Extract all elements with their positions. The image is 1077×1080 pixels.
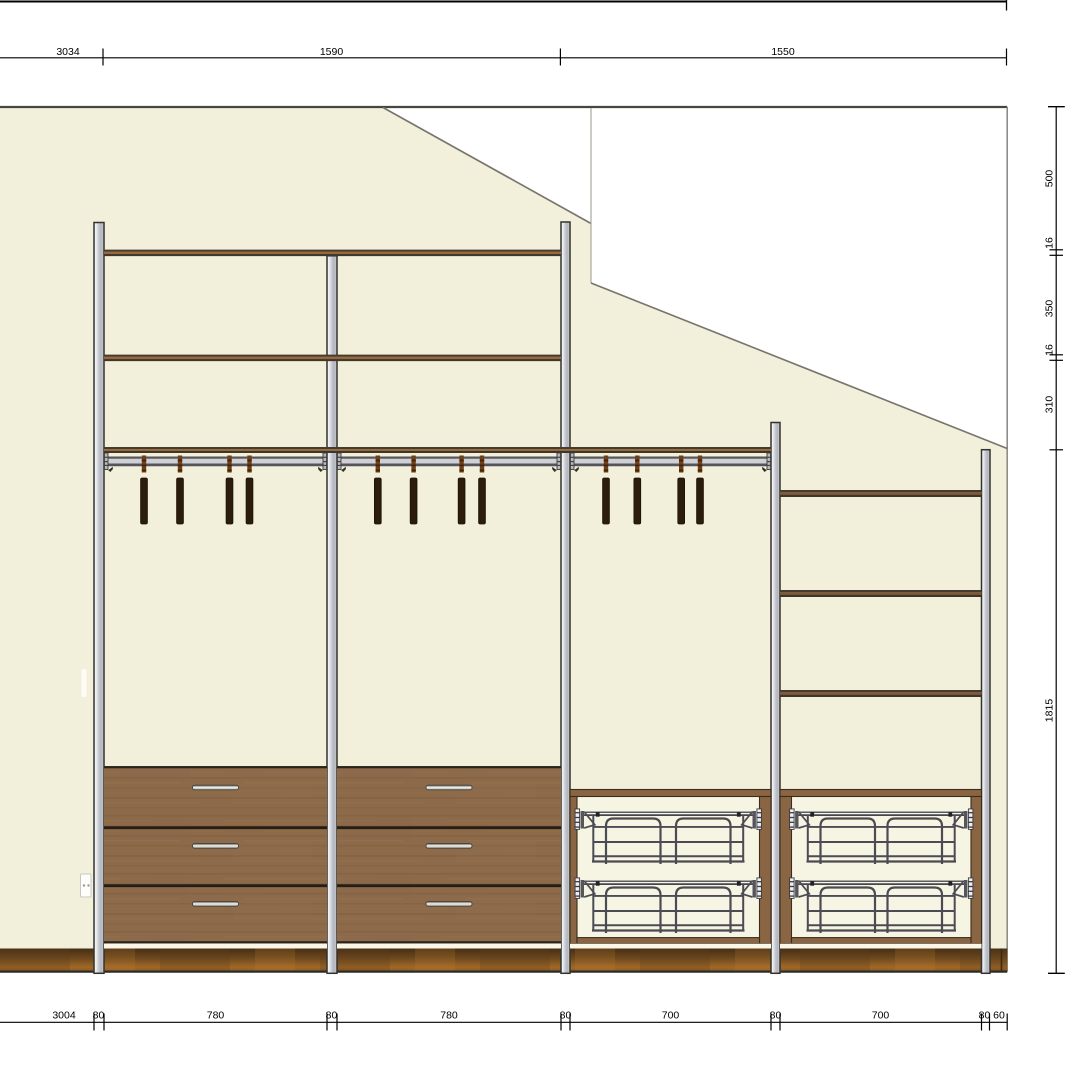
svg-text:60: 60 <box>993 1010 1005 1022</box>
svg-text:3004: 3004 <box>52 1010 76 1022</box>
svg-text:310: 310 <box>1044 396 1056 414</box>
svg-text:80: 80 <box>770 1010 782 1022</box>
svg-text:1590: 1590 <box>320 46 344 58</box>
svg-text:780: 780 <box>207 1010 225 1022</box>
svg-text:3034: 3034 <box>56 46 80 58</box>
svg-text:16: 16 <box>1044 344 1056 356</box>
svg-text:1815: 1815 <box>1044 699 1056 723</box>
svg-text:700: 700 <box>872 1010 890 1022</box>
svg-text:80: 80 <box>560 1010 572 1022</box>
svg-text:780: 780 <box>440 1010 458 1022</box>
svg-text:700: 700 <box>662 1010 680 1022</box>
svg-text:1550: 1550 <box>771 46 795 58</box>
svg-text:500: 500 <box>1044 170 1056 188</box>
svg-text:80: 80 <box>93 1010 105 1022</box>
svg-text:80: 80 <box>326 1010 338 1022</box>
svg-text:80: 80 <box>979 1010 991 1022</box>
svg-text:16: 16 <box>1044 237 1056 249</box>
svg-text:350: 350 <box>1044 300 1056 318</box>
